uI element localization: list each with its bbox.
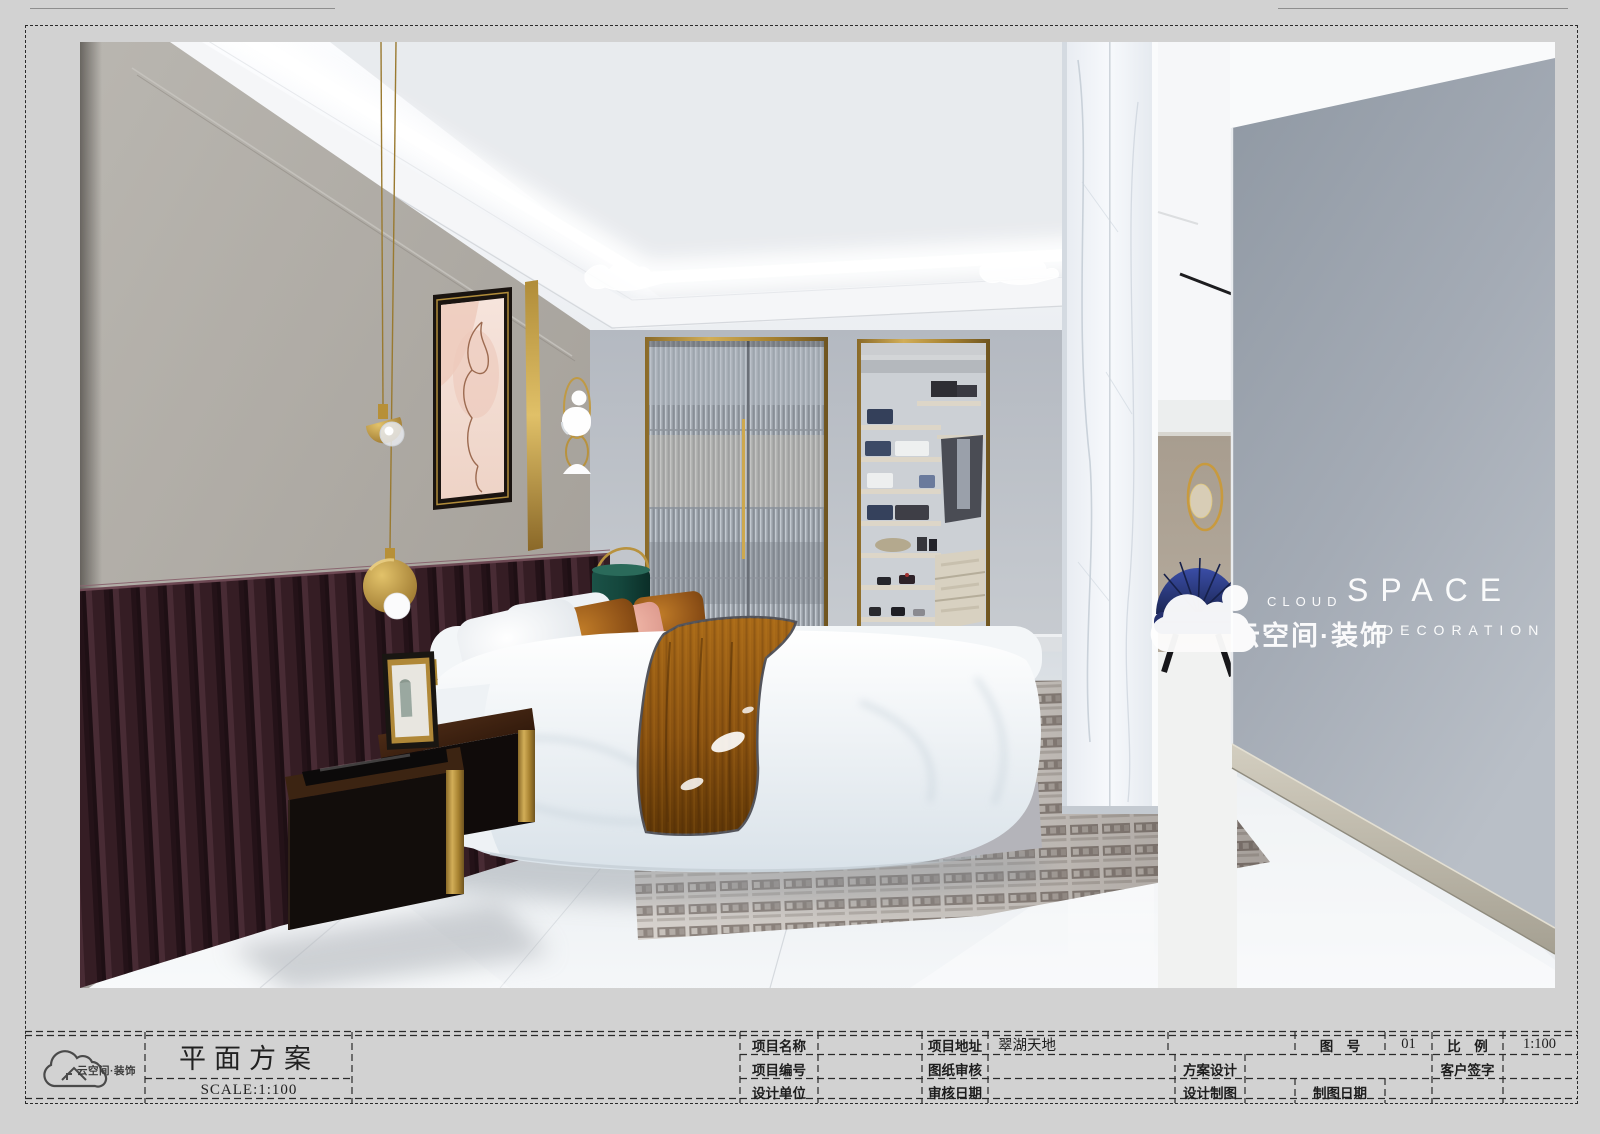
scale-value: 1:100 (1503, 1033, 1576, 1056)
sheet-dashed-border (25, 25, 1578, 1104)
sheet-edge-line-left (30, 8, 335, 9)
design-drafting-label: 设计制图 (1175, 1081, 1245, 1103)
drawing-sheet: CLOUD SPACE 云空间·装饰 DECORATION 云空间·装饰 平面方… (0, 0, 1600, 1134)
drawing-scale-note: SCALE:1:100 (146, 1078, 352, 1102)
client-signature-label: 客户签字 (1432, 1057, 1503, 1080)
drafting-date-label: 制图日期 (1295, 1081, 1385, 1103)
project-address-label: 项目地址 (922, 1033, 988, 1056)
project-name-label: 项目名称 (740, 1033, 818, 1056)
project-no-label: 项目编号 (740, 1057, 818, 1080)
drawing-title: 平面方案 (146, 1034, 352, 1078)
figure-no-label: 图 号 (1295, 1033, 1385, 1056)
review-date-label: 审核日期 (922, 1081, 988, 1103)
project-address-value: 翠湖天地 (988, 1033, 1178, 1056)
drawing-review-label: 图纸审核 (922, 1057, 988, 1080)
scheme-design-label: 方案设计 (1175, 1057, 1245, 1080)
scale-label: 比 例 (1432, 1033, 1503, 1056)
design-unit-label: 设计单位 (740, 1081, 818, 1103)
sheet-edge-line-right (1278, 8, 1568, 9)
company-logo-text: 云空间·装饰 (77, 1063, 136, 1078)
figure-no-value: 01 (1385, 1033, 1432, 1056)
